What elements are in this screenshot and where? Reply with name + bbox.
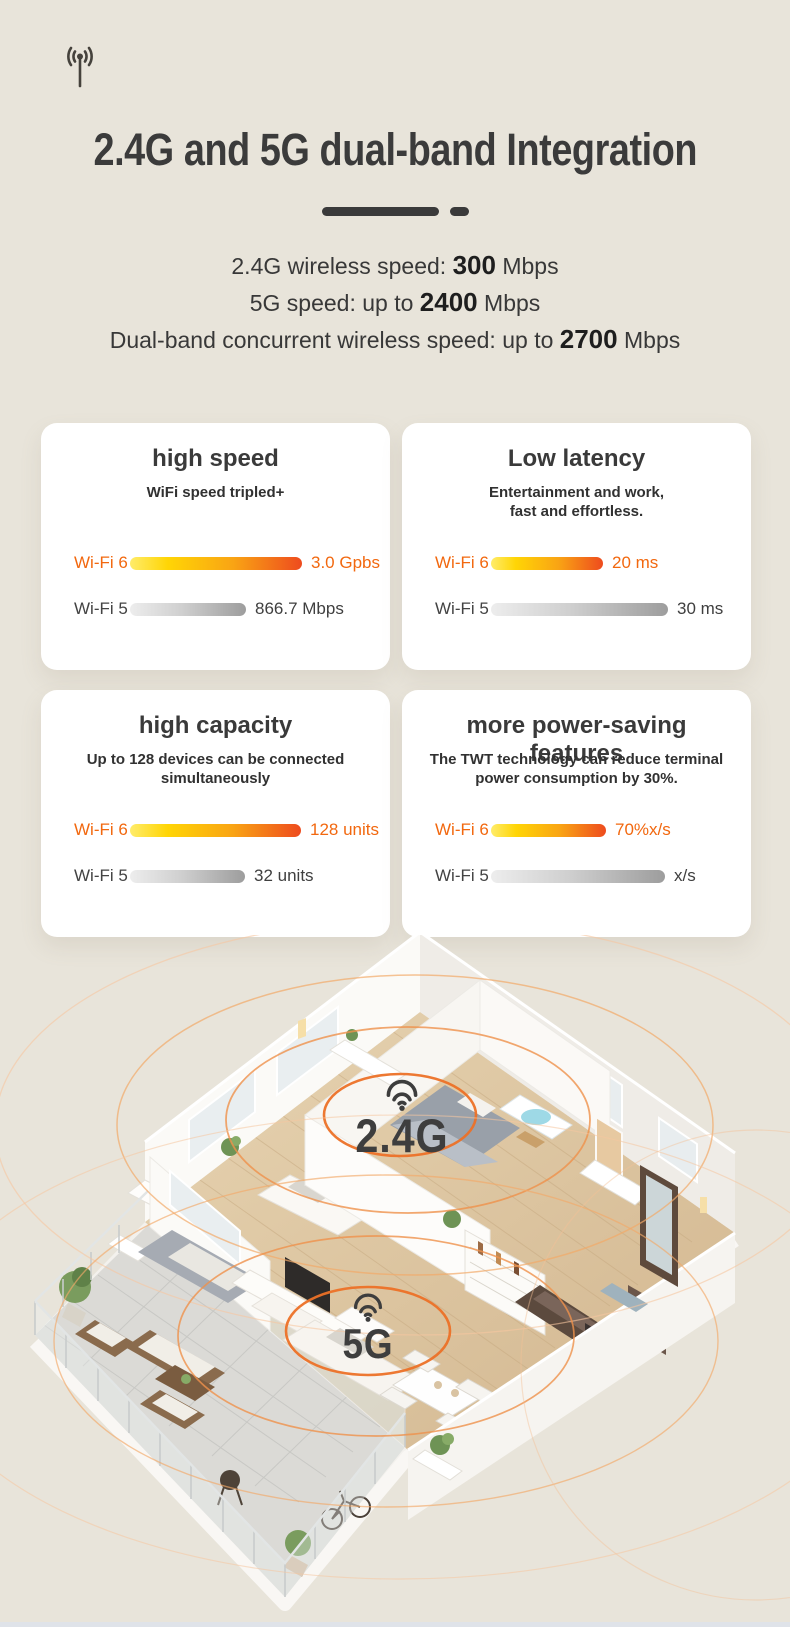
feature-card-high-capacity: high capacity Up to 128 devices can be c… bbox=[41, 690, 390, 937]
wifi5-bar bbox=[130, 603, 246, 616]
table-plant bbox=[181, 1374, 191, 1384]
band-pin-5g: 5G bbox=[288, 1291, 448, 1365]
card-subtitle: WiFi speed tripled+ bbox=[59, 483, 372, 523]
wifi5-row: Wi-Fi 5 30 ms bbox=[435, 586, 733, 632]
wifi5-label: Wi-Fi 5 bbox=[435, 599, 491, 619]
wifi5-value: x/s bbox=[674, 866, 696, 886]
comparison-bars: Wi-Fi 6 128 units Wi-Fi 5 32 units bbox=[59, 807, 372, 899]
antenna-broadcast-icon bbox=[58, 44, 102, 90]
floorplan-illustration bbox=[0, 935, 790, 1627]
band-pin-2-4g: 2.4G bbox=[322, 1077, 482, 1159]
wifi-signal-icon bbox=[379, 1077, 425, 1111]
card-subtitle: Entertainment and work, fast and effortl… bbox=[420, 483, 733, 523]
wifi6-value: 128 units bbox=[310, 820, 379, 840]
wifi6-bar bbox=[491, 557, 603, 570]
wifi6-bar bbox=[491, 824, 606, 837]
spec-line-5g: 5G speed: up to 2400 Mbps bbox=[0, 284, 790, 321]
feature-card-low-latency: Low latency Entertainment and work, fast… bbox=[402, 423, 751, 670]
card-title: Low latency bbox=[420, 445, 733, 473]
wifi5-row: Wi-Fi 5 32 units bbox=[74, 853, 372, 899]
wifi5-label: Wi-Fi 5 bbox=[74, 866, 130, 886]
spec-value: 300 bbox=[453, 250, 496, 280]
card-title: high capacity bbox=[59, 712, 372, 740]
band-label: 2.4G bbox=[355, 1112, 448, 1159]
floorplan-section: 2.4G 5G bbox=[0, 935, 790, 1627]
feature-card-high-speed: high speed WiFi speed tripled+ Wi-Fi 6 3… bbox=[41, 423, 390, 670]
wifi6-row: Wi-Fi 6 70%x/s bbox=[435, 807, 733, 853]
speed-specs: 2.4G wireless speed: 300 Mbps 5G speed: … bbox=[0, 247, 790, 358]
wifi6-bar bbox=[130, 824, 301, 837]
product-infographic-page: 2.4G and 5G dual-band Integration 2.4G w… bbox=[0, 0, 790, 1627]
wifi6-label: Wi-Fi 6 bbox=[74, 820, 130, 840]
wifi-signal-icon bbox=[347, 1291, 389, 1322]
comparison-bars: Wi-Fi 6 70%x/s Wi-Fi 5 x/s bbox=[420, 807, 733, 899]
spec-line-dual-band: Dual-band concurrent wireless speed: up … bbox=[0, 321, 790, 358]
comparison-bars: Wi-Fi 6 20 ms Wi-Fi 5 30 ms bbox=[420, 540, 733, 632]
wifi5-bar bbox=[491, 870, 665, 883]
wifi6-label: Wi-Fi 6 bbox=[435, 820, 491, 840]
wifi5-label: Wi-Fi 5 bbox=[435, 866, 491, 886]
wifi6-row: Wi-Fi 6 3.0 Gpbs bbox=[74, 540, 372, 586]
spec-line-2-4g: 2.4G wireless speed: 300 Mbps bbox=[0, 247, 790, 284]
wifi6-value: 3.0 Gpbs bbox=[311, 553, 380, 573]
mirror-glass bbox=[646, 1175, 672, 1275]
plant bbox=[443, 1210, 461, 1228]
wifi6-value: 20 ms bbox=[612, 553, 658, 573]
card-subtitle: The TWT technology can reduce terminal p… bbox=[420, 750, 733, 790]
card-title: high speed bbox=[59, 445, 372, 473]
title-underline bbox=[0, 207, 790, 216]
wifi6-row: Wi-Fi 6 128 units bbox=[74, 807, 372, 853]
wifi5-row: Wi-Fi 5 x/s bbox=[435, 853, 733, 899]
spec-value: 2400 bbox=[420, 287, 478, 317]
underline-short-dash bbox=[450, 207, 469, 216]
wifi6-label: Wi-Fi 6 bbox=[435, 553, 491, 573]
wifi5-row: Wi-Fi 5 866.7 Mbps bbox=[74, 586, 372, 632]
underline-long-dash bbox=[322, 207, 439, 216]
band-label: 5G bbox=[342, 1323, 393, 1365]
wall-lamp bbox=[298, 1018, 306, 1039]
wifi5-value: 32 units bbox=[254, 866, 314, 886]
wifi5-bar bbox=[491, 603, 668, 616]
comparison-bars: Wi-Fi 6 3.0 Gpbs Wi-Fi 5 866.7 Mbps bbox=[59, 540, 372, 632]
page-title: 2.4G and 5G dual-band Integration bbox=[0, 124, 790, 176]
page-title-text: 2.4G and 5G dual-band Integration bbox=[93, 124, 697, 176]
wall-lamp bbox=[700, 1197, 707, 1213]
wifi6-label: Wi-Fi 6 bbox=[74, 553, 130, 573]
wifi6-row: Wi-Fi 6 20 ms bbox=[435, 540, 733, 586]
card-title: more power-saving features bbox=[420, 712, 733, 740]
feature-cards: high speed WiFi speed tripled+ Wi-Fi 6 3… bbox=[41, 423, 751, 937]
wifi6-bar bbox=[130, 557, 302, 570]
wifi5-value: 30 ms bbox=[677, 599, 723, 619]
wifi6-value: 70%x/s bbox=[615, 820, 671, 840]
wifi5-label: Wi-Fi 5 bbox=[74, 599, 130, 619]
feature-card-power-saving: more power-saving features The TWT techn… bbox=[402, 690, 751, 937]
wifi5-bar bbox=[130, 870, 245, 883]
spec-value: 2700 bbox=[560, 324, 618, 354]
bottom-section-divider bbox=[0, 1622, 790, 1627]
card-subtitle: Up to 128 devices can be connected simul… bbox=[59, 750, 372, 790]
wifi5-value: 866.7 Mbps bbox=[255, 599, 344, 619]
